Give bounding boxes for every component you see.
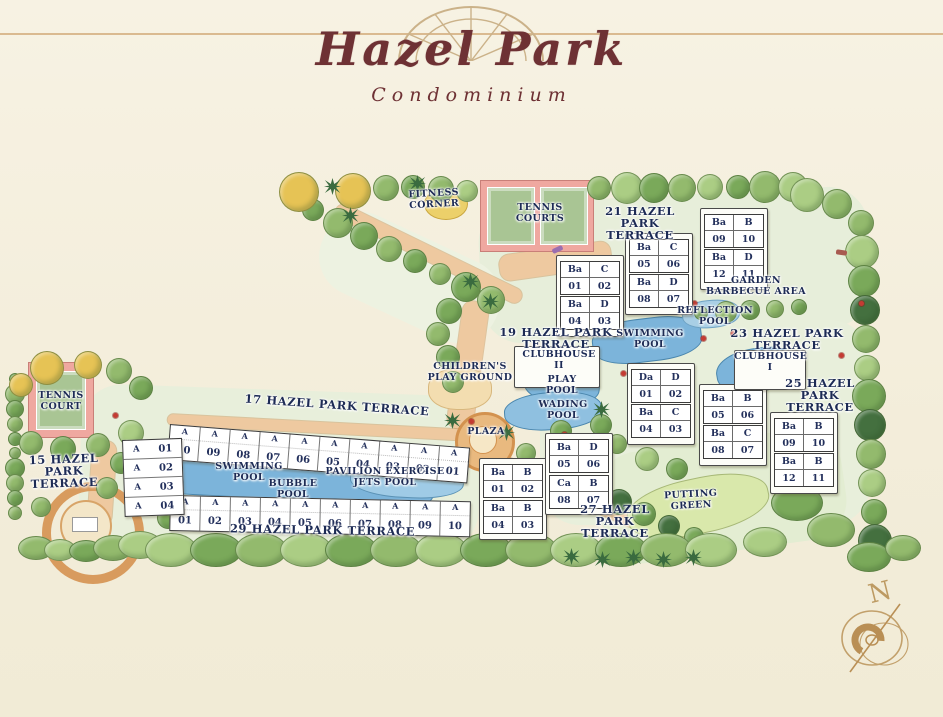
amenity-label: GARDEN BARBECUE AREA [694, 276, 818, 297]
unit-cell: 05 [630, 256, 659, 272]
unit-cell: C [659, 240, 688, 256]
tree [861, 499, 887, 525]
tree [822, 189, 852, 219]
unit-cell: 08 [630, 291, 659, 307]
unit-cell: D [734, 250, 763, 266]
amenity-label: PLAZA [458, 427, 514, 438]
tree [279, 172, 319, 212]
amenity-label: SWIMMING POOL [604, 329, 696, 350]
amenity-label: TENNIS COURT [26, 391, 96, 412]
unit-cell: 02 [513, 481, 542, 497]
unit-block: BaB0910 [774, 418, 834, 452]
unit-block: DaD0102 [631, 369, 691, 403]
unit-cell: B [734, 215, 763, 231]
unit-cell: D [579, 440, 608, 456]
unit-block: BaB0506 [703, 390, 763, 424]
unit-cell: Ba [484, 465, 513, 481]
unit-cell: 01 [632, 386, 661, 402]
unit-cell: A02 [124, 458, 183, 479]
amenity-label: WADING POOL [522, 400, 604, 421]
tree [697, 174, 723, 200]
tree [743, 527, 787, 557]
unit-cell: B [804, 419, 833, 435]
unit-cell: B [513, 501, 542, 517]
unit-cell: Ba [630, 240, 659, 256]
unit-cell: 06 [579, 456, 608, 472]
tree [436, 298, 462, 324]
unit-cell: 02 [590, 278, 619, 294]
unit-cell: 08 [704, 442, 733, 458]
tree [129, 376, 153, 400]
terrace-label: 15 HAZEL PARK TERRACE [13, 451, 114, 491]
tree [858, 469, 886, 497]
site-plan-map: BaB0910BaD1211BaC0506BaD0807BaC0102BaD04… [0, 0, 943, 717]
amenity-label: REFLECTION POOL [666, 306, 764, 327]
tree [726, 175, 750, 199]
unit-cell: B [733, 391, 762, 407]
unit-cell: C [733, 426, 762, 442]
unit-cell: 09 [775, 435, 804, 451]
unit-cell: A03 [124, 477, 183, 498]
unit-cell: 09 [705, 231, 734, 247]
tree [635, 447, 659, 471]
compass-icon [838, 600, 924, 674]
tree [668, 174, 696, 202]
tree [19, 431, 43, 455]
unit-block: BaC0403 [631, 404, 691, 438]
terrace-label: 23 HAZEL PARK TERRACE [712, 327, 862, 351]
unit-cell: D [659, 275, 688, 291]
unit-cell: A01 [123, 439, 182, 460]
unit-cell: 07 [733, 442, 762, 458]
terrace-label: 25 HAZEL PARK TERRACE [772, 377, 868, 413]
unit-cell: 01 [484, 481, 513, 497]
unit-cell: 11 [804, 470, 833, 486]
terrace-label: 27 HAZEL PARK TERRACE [566, 503, 664, 539]
unit-cell: Ba [484, 501, 513, 517]
amenity-label: PLAY POOL [530, 375, 594, 396]
flower-accent [701, 336, 706, 341]
unit-block: BaB0403 [483, 500, 543, 534]
tree [854, 409, 886, 441]
unit-block: BaC0506 [629, 239, 689, 273]
tree [8, 506, 22, 520]
flower-accent [859, 301, 864, 306]
tree [7, 490, 23, 506]
unit-cell: 06 [733, 407, 762, 423]
unit-cell: Ba [561, 262, 590, 278]
unit-cell: Ba [561, 297, 590, 313]
unit-cell: 02 [661, 386, 690, 402]
unit-cell: Ba [705, 215, 734, 231]
tree [323, 208, 353, 238]
amenity-label: TENNIS COURTS [500, 203, 580, 224]
tree [749, 171, 781, 203]
amenity-label: PAVILION EXERCISE JETS POOL [314, 467, 456, 488]
tree [7, 416, 23, 432]
tree [856, 439, 886, 469]
unit-block: BaD0807 [629, 274, 689, 308]
unit-cell: 05 [550, 456, 579, 472]
tree [106, 358, 132, 384]
unit-cell: Ca [550, 476, 579, 492]
unit-block: BaB1211 [774, 453, 834, 487]
tree [666, 458, 688, 480]
unit-cell: 10 [734, 231, 763, 247]
unit-cell: 01 [561, 278, 590, 294]
unit-cell: 04 [632, 421, 661, 437]
tree [31, 497, 51, 517]
15-hazel-park-terrace: A01A02A03A04 [122, 438, 185, 517]
amenity-label: FITNESS CORNER [395, 187, 472, 212]
flower-accent [469, 419, 474, 424]
unit-cell: 05 [704, 407, 733, 423]
unit-cell: Ba [550, 440, 579, 456]
unit-cell: 06 [659, 256, 688, 272]
unit-cell: A09 [198, 427, 231, 463]
unit-cell: Ba [704, 391, 733, 407]
tree [885, 535, 921, 561]
amenity-label: CLUBHOUSE II [516, 350, 602, 371]
hazel-park-site-plan: Hazel Park Condominium BaB0910BaD1211BaC… [0, 0, 943, 717]
tree [807, 513, 855, 547]
flower-accent [113, 413, 118, 418]
tree [766, 300, 784, 318]
unit-cell: Ba [630, 275, 659, 291]
flower-accent [839, 353, 844, 358]
unit-cell: A04 [125, 496, 184, 516]
tree [790, 178, 824, 212]
tree [850, 295, 880, 325]
unit-cell: Da [632, 370, 661, 386]
tree [848, 210, 874, 236]
unit-block: BaB0102 [483, 464, 543, 498]
unit-cell: Ba [775, 419, 804, 435]
unit-cell: Ba [705, 250, 734, 266]
tree [791, 299, 807, 315]
tree [350, 222, 378, 250]
unit-block: BaB0910 [704, 214, 764, 248]
unit-cell: 12 [775, 470, 804, 486]
tree [403, 249, 427, 273]
tree [587, 176, 611, 200]
amenity-label: CHILDREN'S PLAY GROUND [420, 362, 520, 383]
unit-block: BaD0506 [549, 439, 609, 473]
flower-accent [621, 371, 626, 376]
unit-cell: D [590, 297, 619, 313]
unit-cell: 03 [513, 517, 542, 533]
unit-block: BaC0807 [703, 425, 763, 459]
compass: N [838, 574, 938, 674]
unit-cell: B [579, 476, 608, 492]
tree [376, 236, 402, 262]
unit-cell: D [661, 370, 690, 386]
unit-cell: Ba [704, 426, 733, 442]
tree [429, 263, 451, 285]
tree [639, 173, 669, 203]
unit-cell: C [590, 262, 619, 278]
terrace-label: 21 HAZEL PARK TERRACE [588, 205, 692, 241]
amenity-label: PUTTING GREEN [651, 488, 730, 513]
tree [30, 351, 64, 385]
unit-cell: C [661, 405, 690, 421]
unit-cell: 04 [484, 517, 513, 533]
tree [335, 173, 371, 209]
unit-cell: 03 [661, 421, 690, 437]
tree [848, 265, 880, 297]
unit-cell: B [513, 465, 542, 481]
unit-cell: 10 [804, 435, 833, 451]
tree [74, 351, 102, 379]
unit-block: BaC0102 [560, 261, 620, 295]
unit-cell: Ba [632, 405, 661, 421]
tree [426, 322, 450, 346]
unit-cell: Ba [775, 454, 804, 470]
amenity-label: CLUBHOUSE I [734, 352, 806, 373]
unit-cell: B [804, 454, 833, 470]
entrance-roundabout-kiosk [72, 517, 98, 532]
tree [845, 235, 879, 269]
